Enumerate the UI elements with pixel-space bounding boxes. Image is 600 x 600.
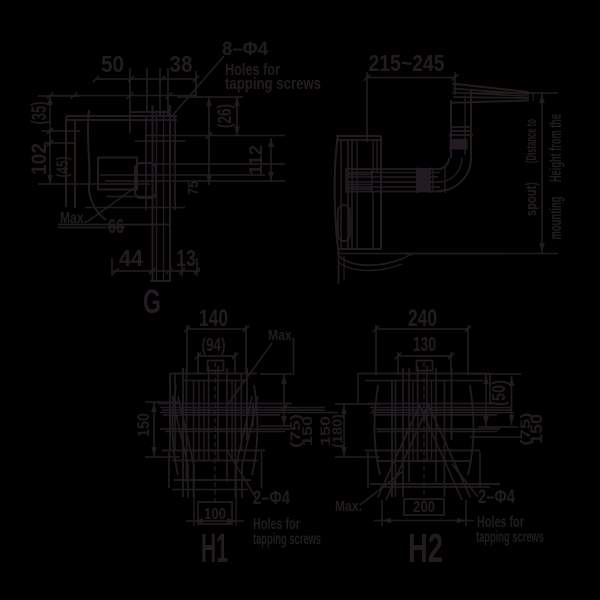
svg-text:150: 150 (299, 416, 315, 446)
svg-text:200: 200 (413, 499, 435, 516)
svg-text:215~245: 215~245 (369, 50, 445, 76)
svg-text:H1: H1 (201, 525, 228, 571)
svg-text:spout): spout) (523, 182, 540, 216)
svg-text:130: 130 (413, 334, 436, 356)
svg-text:H2: H2 (408, 525, 443, 571)
svg-text:(35): (35) (28, 102, 51, 125)
svg-text:(180): (180) (329, 414, 345, 448)
svg-text:(50): (50) (489, 380, 509, 406)
svg-text:102: 102 (28, 143, 51, 175)
svg-text:G: G (143, 283, 161, 321)
svg-text:150: 150 (134, 413, 153, 437)
svg-text:38: 38 (170, 51, 193, 77)
svg-text:Max.: Max. (268, 327, 295, 344)
svg-text:tapping screws: tapping screws (476, 529, 544, 546)
svg-text:8–Φ4: 8–Φ4 (222, 39, 268, 60)
svg-text:13: 13 (176, 245, 196, 271)
svg-text:112: 112 (246, 145, 266, 175)
svg-text:2–Φ4: 2–Φ4 (253, 488, 290, 509)
svg-text:150: 150 (527, 414, 546, 444)
svg-text:50: 50 (101, 51, 124, 77)
svg-text:66: 66 (108, 216, 124, 238)
svg-text:Height from the: Height from the (546, 114, 565, 182)
svg-text:75: 75 (185, 181, 202, 195)
svg-text:tapping screws: tapping screws (225, 74, 321, 93)
svg-text:Max.: Max. (60, 210, 87, 227)
svg-text:140: 140 (199, 305, 228, 332)
svg-text:(Distance to: (Distance to (523, 119, 540, 163)
svg-text:(94): (94) (202, 335, 226, 355)
svg-text:tapping screws: tapping screws (253, 531, 321, 548)
svg-text:240: 240 (408, 305, 437, 332)
svg-text:Max.: Max. (335, 498, 362, 515)
svg-text:2–Φ4: 2–Φ4 (478, 487, 515, 508)
svg-text:44: 44 (119, 245, 143, 271)
svg-text:(26): (26) (215, 104, 236, 128)
svg-text:mounting: mounting (546, 197, 565, 240)
svg-text:(45): (45) (53, 157, 72, 178)
